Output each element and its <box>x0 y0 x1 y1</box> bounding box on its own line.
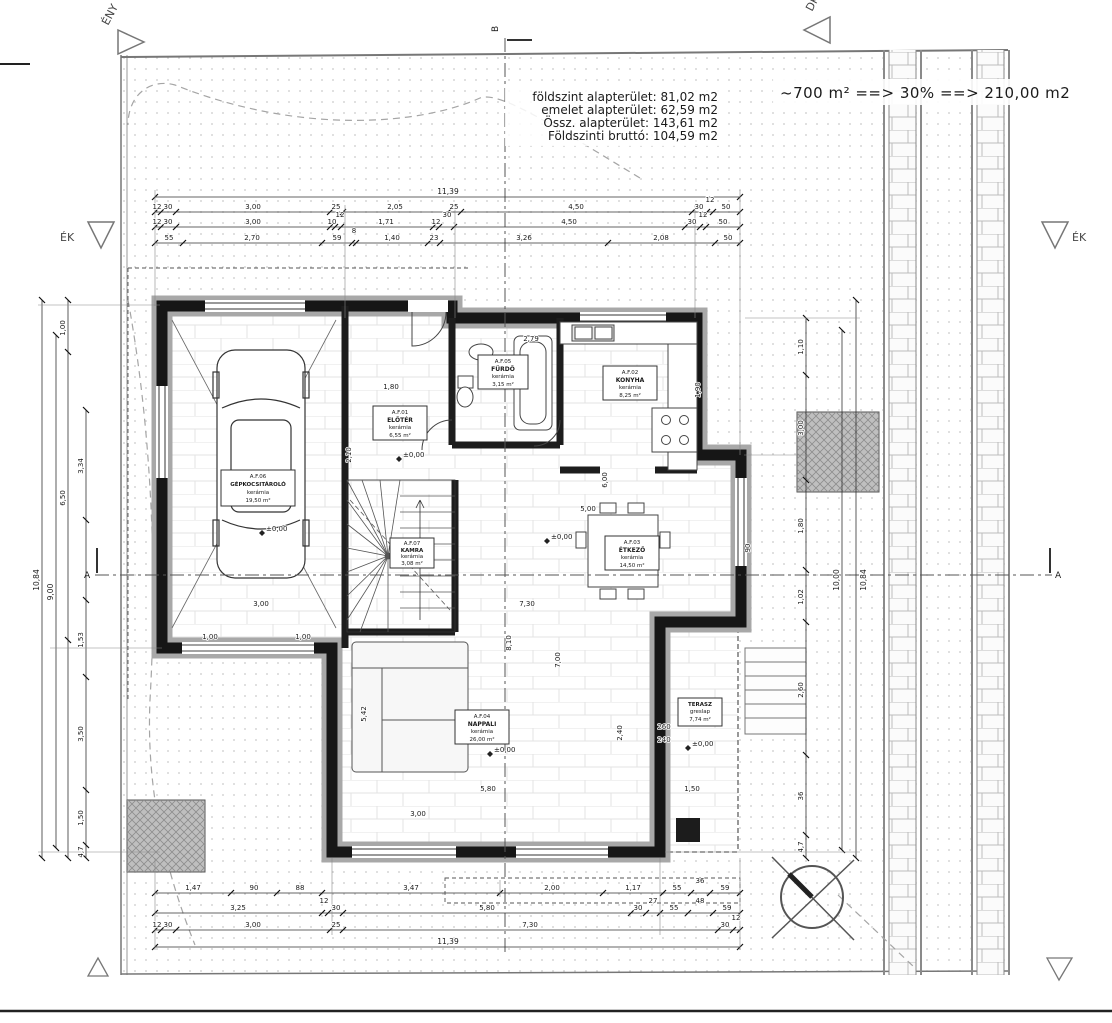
svg-text:5,00: 5,00 <box>580 505 596 513</box>
svg-text:±0,00: ±0,00 <box>266 525 287 533</box>
svg-text:30: 30 <box>695 203 704 211</box>
svg-text:4,7: 4,7 <box>77 846 85 857</box>
room-label-etkezo: A.F.03 ÉTKEZŐ kerámia 14,50 m² <box>605 536 659 570</box>
section-label-a-left: A <box>84 571 91 581</box>
svg-text:12: 12 <box>153 921 162 929</box>
svg-text:3,00: 3,00 <box>410 810 426 818</box>
svg-text:25: 25 <box>332 203 341 211</box>
svg-text:1,47: 1,47 <box>185 884 201 892</box>
svg-text:11,39: 11,39 <box>437 187 459 196</box>
svg-text:3,00: 3,00 <box>253 600 269 608</box>
svg-text:30: 30 <box>634 904 643 912</box>
svg-text:ELŐTÉR: ELŐTÉR <box>387 416 413 424</box>
svg-text:30: 30 <box>164 921 173 929</box>
svg-text:23: 23 <box>430 234 439 242</box>
svg-text:26,00 m²: 26,00 m² <box>469 736 494 743</box>
svg-text:2,05: 2,05 <box>387 203 403 211</box>
svg-text:9,00: 9,00 <box>46 583 55 600</box>
svg-text:3,25: 3,25 <box>230 904 246 912</box>
svg-text:10: 10 <box>328 218 337 226</box>
svg-text:1,17: 1,17 <box>625 884 641 892</box>
svg-text:4,50: 4,50 <box>568 203 584 211</box>
fireplace <box>676 818 700 842</box>
svg-text:A.F.05: A.F.05 <box>495 359 512 365</box>
orientation-ek-right-marker: ÉK <box>1042 222 1087 248</box>
section-label-a-right: A <box>1055 571 1062 581</box>
svg-text:3,08 m²: 3,08 m² <box>401 560 423 567</box>
svg-text:A.F.04: A.F.04 <box>474 714 491 720</box>
svg-text:6,00: 6,00 <box>601 472 609 488</box>
svg-text:8: 8 <box>352 227 356 235</box>
svg-text:11,39: 11,39 <box>437 937 459 946</box>
area-line-brutto: Földszinti bruttó: 104,59 m2 <box>548 129 718 143</box>
svg-text:kerámia: kerámia <box>247 489 269 496</box>
svg-text:50: 50 <box>724 234 733 242</box>
svg-text:kerámia: kerámia <box>621 554 643 561</box>
svg-text:1,10: 1,10 <box>797 339 805 355</box>
svg-text:25: 25 <box>332 921 341 929</box>
svg-text:30: 30 <box>721 921 730 929</box>
orientation-eny-label: ÉNY <box>99 2 121 28</box>
area-line-ossz: Össz. alapterület: 143,61 m2 <box>543 114 718 130</box>
svg-text:30: 30 <box>164 203 173 211</box>
svg-text:8,25 m²: 8,25 m² <box>619 392 641 399</box>
room-label-nappali: A.F.04 NAPPALI kerámia 26,00 m² <box>455 710 509 744</box>
svg-text:50: 50 <box>719 218 728 226</box>
road-band-inner <box>884 50 921 975</box>
svg-text:A.F.06: A.F.06 <box>250 474 267 480</box>
svg-text:12: 12 <box>320 897 329 905</box>
svg-text:GÉPKOCSITÁROLÓ: GÉPKOCSITÁROLÓ <box>230 480 286 488</box>
svg-text:1,00: 1,00 <box>295 633 311 641</box>
dim-labels-left: 10,84 9,00 1,00 6,50 3,34 1,53 3,50 1,50… <box>32 320 85 857</box>
svg-text:3,26: 3,26 <box>516 234 532 242</box>
svg-text:55: 55 <box>165 234 174 242</box>
svg-text:3,47: 3,47 <box>403 884 419 892</box>
orientation-dk-marker: DK <box>803 0 830 43</box>
svg-text:59: 59 <box>721 884 730 892</box>
svg-text:5,80: 5,80 <box>479 904 495 912</box>
svg-text:2,70: 2,70 <box>244 234 260 242</box>
road-band-outer <box>972 50 1009 975</box>
svg-text:36: 36 <box>797 791 805 800</box>
orientation-ek-left-marker: ÉK <box>60 222 114 248</box>
svg-text:A.F.01: A.F.01 <box>392 410 408 416</box>
svg-text:19,50 m²: 19,50 m² <box>245 497 270 504</box>
svg-text:±0,00: ±0,00 <box>494 746 515 754</box>
svg-text:±0,00: ±0,00 <box>403 451 424 459</box>
svg-text:2,00: 2,00 <box>544 884 560 892</box>
svg-text:7,30: 7,30 <box>519 600 535 608</box>
room-label-konyha: A.F.02 KONYHA kerámia 8,25 m² <box>603 366 657 400</box>
svg-text:12: 12 <box>153 203 162 211</box>
hatched-structure-bottom-left <box>127 800 205 872</box>
svg-text:48: 48 <box>696 897 705 905</box>
svg-text:7,30: 7,30 <box>522 921 538 929</box>
svg-text:1,02: 1,02 <box>797 589 805 605</box>
floor-plan-drawing: B A A ÉNY DK ÉK ÉK földszint alapterület… <box>0 0 1112 1023</box>
svg-text:12: 12 <box>699 211 708 219</box>
svg-text:3,00: 3,00 <box>797 420 805 436</box>
svg-text:7,00: 7,00 <box>554 652 562 668</box>
svg-text:55: 55 <box>673 884 682 892</box>
svg-text:1,80: 1,80 <box>797 518 805 534</box>
svg-text:greslap: greslap <box>690 709 711 715</box>
svg-text:1,71: 1,71 <box>378 218 394 226</box>
svg-text:2,40: 2,40 <box>616 725 624 741</box>
room-label-terasz: TERASZ greslap 7,74 m² <box>678 698 722 726</box>
area-line-foldszint: földszint alapterület: 81,02 m2 <box>532 90 718 104</box>
svg-text:12: 12 <box>153 218 162 226</box>
svg-text:1,50: 1,50 <box>77 810 85 826</box>
floor-plan-sheet: B A A ÉNY DK ÉK ÉK földszint alapterület… <box>0 0 1112 1023</box>
svg-text:25: 25 <box>450 203 459 211</box>
svg-text:1,80: 1,80 <box>383 383 399 391</box>
room-label-gepkocsitarolo: A.F.06 GÉPKOCSITÁROLÓ kerámia 19,50 m² <box>221 470 295 506</box>
svg-text:kerámia: kerámia <box>401 553 423 560</box>
svg-text:A.F.02: A.F.02 <box>622 370 638 376</box>
svg-text:1,00: 1,00 <box>59 320 67 336</box>
svg-text:2,79: 2,79 <box>523 335 539 343</box>
svg-text:2,08: 2,08 <box>653 234 669 242</box>
svg-text:1,53: 1,53 <box>77 632 85 648</box>
svg-text:30: 30 <box>164 218 173 226</box>
svg-text:30: 30 <box>688 218 697 226</box>
svg-text:7,74 m²: 7,74 m² <box>689 716 711 723</box>
svg-text:30: 30 <box>443 211 452 219</box>
svg-text:1,40: 1,40 <box>384 234 400 242</box>
svg-text:14,50 m²: 14,50 m² <box>619 562 644 569</box>
svg-text:3,00: 3,00 <box>245 921 261 929</box>
svg-text:59: 59 <box>723 904 732 912</box>
svg-text:4,50: 4,50 <box>561 218 577 226</box>
svg-text:1,00: 1,00 <box>202 633 218 641</box>
svg-text:kerámia: kerámia <box>619 384 641 391</box>
svg-text:A.F.07: A.F.07 <box>404 541 421 547</box>
room-label-kamra: A.F.07 KAMRA kerámia 3,08 m² <box>390 538 434 568</box>
svg-text:30: 30 <box>332 904 341 912</box>
svg-text:88: 88 <box>296 884 305 892</box>
svg-text:kerámia: kerámia <box>389 424 411 431</box>
orientation-ek-right-label: ÉK <box>1072 231 1087 244</box>
svg-text:3,34: 3,34 <box>77 458 85 474</box>
svg-text:10,00: 10,00 <box>832 569 841 591</box>
svg-text:6,55 m²: 6,55 m² <box>389 432 411 439</box>
svg-text:kerámia: kerámia <box>492 373 514 380</box>
sofa <box>352 642 468 772</box>
svg-text:10,84: 10,84 <box>32 569 41 591</box>
svg-text:12: 12 <box>336 211 345 219</box>
svg-text:ÉTKEZŐ: ÉTKEZŐ <box>619 546 645 554</box>
svg-text:NAPPALI: NAPPALI <box>468 721 497 728</box>
svg-text:TERASZ: TERASZ <box>688 702 712 708</box>
svg-text:12: 12 <box>732 914 741 922</box>
orientation-ek-left-label: ÉK <box>60 231 75 244</box>
svg-text:1,50: 1,50 <box>684 785 700 793</box>
room-label-furdo: A.F.05 FÜRDŐ kerámia 3,15 m² <box>478 355 528 389</box>
svg-text:±0,00: ±0,00 <box>551 533 572 541</box>
svg-text:A.F.03: A.F.03 <box>624 540 641 546</box>
svg-text:FÜRDŐ: FÜRDŐ <box>491 366 515 373</box>
svg-text:3,00: 3,00 <box>245 218 261 226</box>
orientation-dk-label: DK <box>803 0 822 13</box>
svg-text:240: 240 <box>657 736 670 744</box>
svg-text:2,10: 2,10 <box>345 447 353 463</box>
area-summary: földszint alapterület: 81,02 m2 emelet a… <box>505 88 723 146</box>
svg-text:1,90: 1,90 <box>694 382 702 398</box>
svg-text:4,7: 4,7 <box>797 841 805 852</box>
svg-text:59: 59 <box>333 234 342 242</box>
svg-text:3,00: 3,00 <box>245 203 261 211</box>
svg-text:36: 36 <box>696 877 705 885</box>
car <box>213 350 309 578</box>
area-line-emelet: emelet alapterület: 62,59 m2 <box>541 103 718 117</box>
svg-text:10,84: 10,84 <box>859 569 868 591</box>
svg-text:6,50: 6,50 <box>59 490 67 506</box>
svg-text:50: 50 <box>722 203 731 211</box>
svg-text:±0,00: ±0,00 <box>692 740 713 748</box>
svg-text:90: 90 <box>250 884 259 892</box>
svg-text:12: 12 <box>706 196 715 204</box>
svg-text:2,60: 2,60 <box>797 682 805 698</box>
svg-text:55: 55 <box>670 904 679 912</box>
section-label-b: B <box>491 26 501 32</box>
svg-text:8,10: 8,10 <box>505 635 513 651</box>
svg-text:KONYHA: KONYHA <box>616 377 645 384</box>
orientation-eny-marker: ÉNY <box>99 2 144 54</box>
svg-text:5,42: 5,42 <box>360 706 368 722</box>
coverage-formula: ~700 m² ==> 30% ==> 210,00 m2 <box>773 79 1070 105</box>
svg-text:90: 90 <box>744 544 752 553</box>
svg-text:3,50: 3,50 <box>77 726 85 742</box>
hatched-structure-right <box>797 412 879 492</box>
svg-text:5,80: 5,80 <box>480 785 496 793</box>
svg-text:260: 260 <box>657 723 670 731</box>
svg-text:27: 27 <box>649 897 658 905</box>
room-label-eloter: A.F.01 ELŐTÉR kerámia 6,55 m² <box>373 406 427 440</box>
svg-text:kerámia: kerámia <box>471 728 493 735</box>
svg-text:12: 12 <box>432 218 441 226</box>
svg-text:3,15 m²: 3,15 m² <box>492 381 514 388</box>
coverage-formula-text: ~700 m² ==> 30% ==> 210,00 m2 <box>780 84 1070 102</box>
